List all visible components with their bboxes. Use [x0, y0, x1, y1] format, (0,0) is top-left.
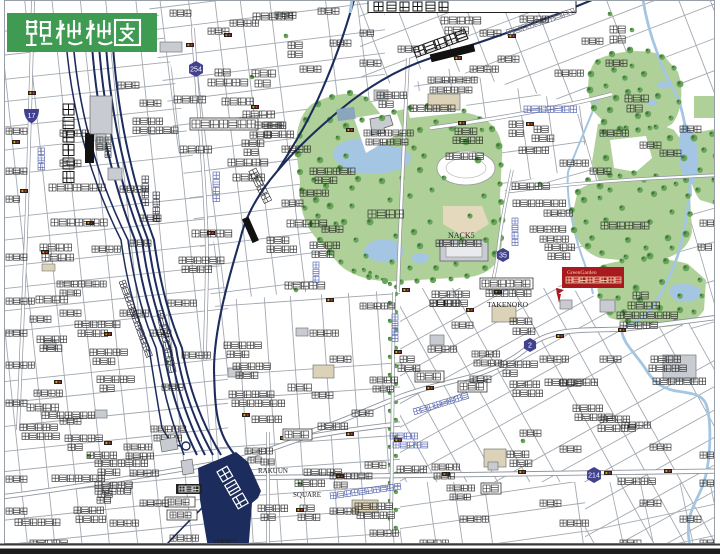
- svg-text:214: 214: [588, 473, 600, 480]
- svg-text:GreenGarden: GreenGarden: [567, 270, 597, 276]
- svg-text:254: 254: [190, 67, 202, 74]
- svg-text:SQUARE: SQUARE: [293, 491, 321, 499]
- svg-text:RAKUUN: RAKUUN: [258, 467, 288, 475]
- svg-text:35: 35: [499, 253, 507, 260]
- svg-text:TAKENOKO: TAKENOKO: [487, 300, 529, 309]
- svg-text:17: 17: [28, 113, 36, 120]
- svg-text:2: 2: [528, 343, 532, 350]
- svg-text:NACK5: NACK5: [448, 231, 475, 240]
